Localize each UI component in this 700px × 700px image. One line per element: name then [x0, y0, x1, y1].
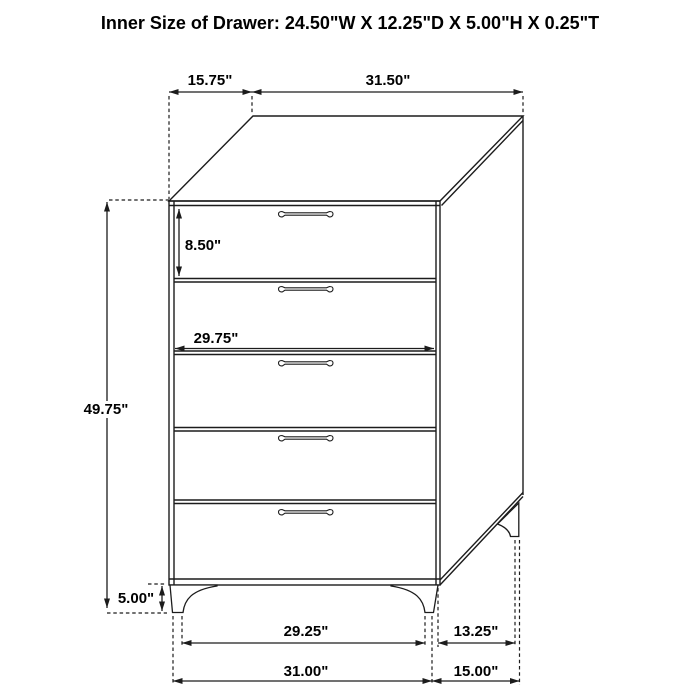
drawer-handle [279, 287, 334, 292]
drawer-handles [279, 212, 334, 515]
dim-label-drawer-width: 29.75" [192, 330, 241, 347]
drawer-handle [279, 436, 334, 441]
front-right-leg [391, 585, 438, 613]
dim-label-overall-depth: 15.00" [452, 663, 501, 680]
front-left-leg [170, 585, 217, 613]
drawer-handle [279, 212, 334, 217]
dim-label-front-foot-span: 29.25" [282, 623, 331, 640]
chest-line-drawing [0, 0, 700, 700]
dim-label-top-depth: 15.75" [186, 72, 235, 89]
dim-label-side-foot-span: 13.25" [452, 623, 501, 640]
cabinet-outline [169, 116, 523, 585]
dimension-diagram-page: Inner Size of Drawer: 24.50"W X 12.25"D … [0, 0, 700, 700]
dim-label-top-width: 31.50" [364, 72, 413, 89]
drawer-handle [279, 510, 334, 515]
dim-label-overall-width: 31.00" [282, 663, 331, 680]
drawer-handle [279, 361, 334, 366]
dim-label-overall-height: 49.75" [82, 401, 131, 418]
dim-label-leg-height: 5.00" [116, 590, 156, 607]
dim-label-drawer-height: 8.50" [183, 237, 223, 254]
